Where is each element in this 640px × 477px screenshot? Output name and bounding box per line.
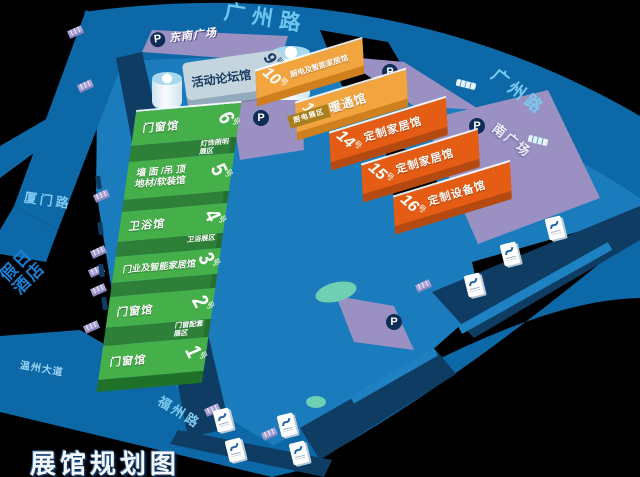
hall-number-badge: 14号 bbox=[333, 128, 363, 157]
hall-number-badge: 1号 bbox=[181, 341, 208, 368]
hall-number-badge: 5号 bbox=[207, 159, 234, 186]
hall-number-badge: 15号 bbox=[365, 160, 395, 189]
hall-name: 门窗馆 bbox=[142, 117, 181, 136]
parking-icon: P bbox=[149, 31, 166, 48]
hall-forum-name: 活动论坛馆 bbox=[190, 66, 252, 91]
parking-icon: P bbox=[386, 314, 402, 330]
hall-number-badge: 16号 bbox=[397, 192, 427, 221]
hall-number-badge: 3号 bbox=[194, 248, 221, 275]
hall-name: 卫浴馆 bbox=[128, 215, 167, 234]
hall-name: 墙 面 /吊 顶地材/软装馆 bbox=[134, 165, 188, 191]
hall-name: 暖通馆 bbox=[327, 88, 369, 116]
hall-name: 门业及智能家居馆 bbox=[122, 256, 197, 275]
map-title: 展馆规划图 bbox=[30, 444, 180, 477]
cylinder-top bbox=[152, 72, 182, 85]
parking-icon: P bbox=[253, 110, 269, 126]
zone-label: 卫浴展区 bbox=[186, 234, 222, 245]
hall-number-badge: 2号 bbox=[188, 291, 215, 318]
hall-number-badge: 6号 bbox=[214, 107, 241, 134]
venue-map: 广州路 广州路 厦门路 温州大道 福州路 假日 酒店 P 东南广场 P P P … bbox=[0, 0, 640, 477]
hall-number-badge: 10号 bbox=[259, 65, 289, 94]
hall-name: 门窗馆 bbox=[116, 301, 155, 320]
pond-small bbox=[306, 396, 326, 408]
tower-cylinder bbox=[152, 78, 182, 108]
hall-name: 门窗馆 bbox=[109, 351, 148, 370]
hall-number-badge: 4号 bbox=[200, 205, 227, 232]
